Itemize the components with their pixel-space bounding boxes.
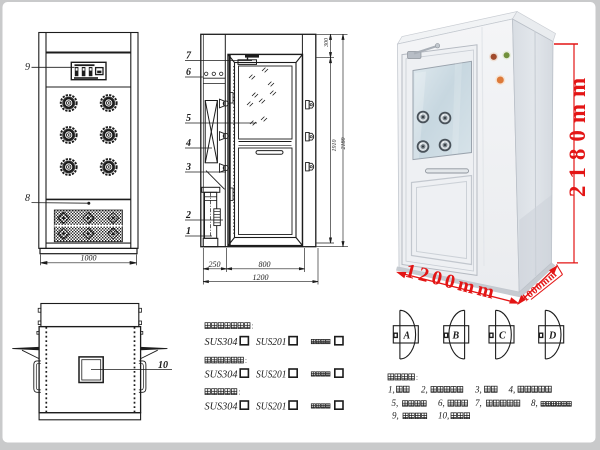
- svg-text:3,: 3,: [474, 384, 482, 394]
- svg-text:1910: 1910: [332, 140, 338, 152]
- svg-text:4,: 4,: [509, 384, 516, 394]
- svg-text:1,: 1,: [388, 384, 395, 394]
- svg-text::: :: [245, 358, 247, 365]
- svg-text:10: 10: [158, 360, 168, 371]
- svg-text:SUS201: SUS201: [256, 369, 287, 381]
- svg-text:SUS304: SUS304: [205, 401, 238, 413]
- svg-text:SUS304: SUS304: [205, 336, 238, 348]
- svg-text:10,: 10,: [438, 411, 449, 421]
- svg-text:A: A: [403, 331, 411, 342]
- svg-text:7,: 7,: [475, 398, 482, 408]
- svg-text:300: 300: [324, 38, 330, 48]
- svg-text:C: C: [499, 331, 506, 342]
- svg-text:D: D: [548, 331, 556, 342]
- svg-text:4: 4: [185, 138, 191, 149]
- svg-text:SUS201: SUS201: [256, 336, 287, 348]
- svg-text:1: 1: [186, 226, 191, 237]
- svg-text:B: B: [452, 331, 460, 342]
- svg-text:8: 8: [25, 193, 30, 204]
- svg-text:5: 5: [186, 113, 191, 124]
- svg-text:1200: 1200: [253, 273, 269, 282]
- svg-text:2180mm: 2180mm: [565, 71, 590, 197]
- svg-text:9: 9: [25, 62, 30, 73]
- svg-text:2,: 2,: [421, 384, 428, 394]
- svg-text:SUS201: SUS201: [256, 401, 287, 413]
- svg-text:9,: 9,: [392, 411, 399, 421]
- svg-text:3: 3: [185, 162, 191, 173]
- svg-text:1000: 1000: [81, 253, 97, 262]
- svg-text:5,: 5,: [392, 398, 399, 408]
- svg-text:6: 6: [186, 67, 191, 78]
- svg-text:8,: 8,: [531, 398, 538, 408]
- svg-text:2180: 2180: [341, 138, 347, 150]
- svg-text::: :: [239, 390, 241, 397]
- svg-text:2: 2: [185, 210, 191, 221]
- svg-text::: :: [416, 375, 418, 382]
- svg-text:250: 250: [209, 260, 221, 269]
- svg-text:6,: 6,: [438, 398, 445, 408]
- svg-text::: :: [252, 324, 254, 331]
- svg-text:800: 800: [259, 260, 271, 269]
- svg-text:SUS304: SUS304: [205, 369, 238, 381]
